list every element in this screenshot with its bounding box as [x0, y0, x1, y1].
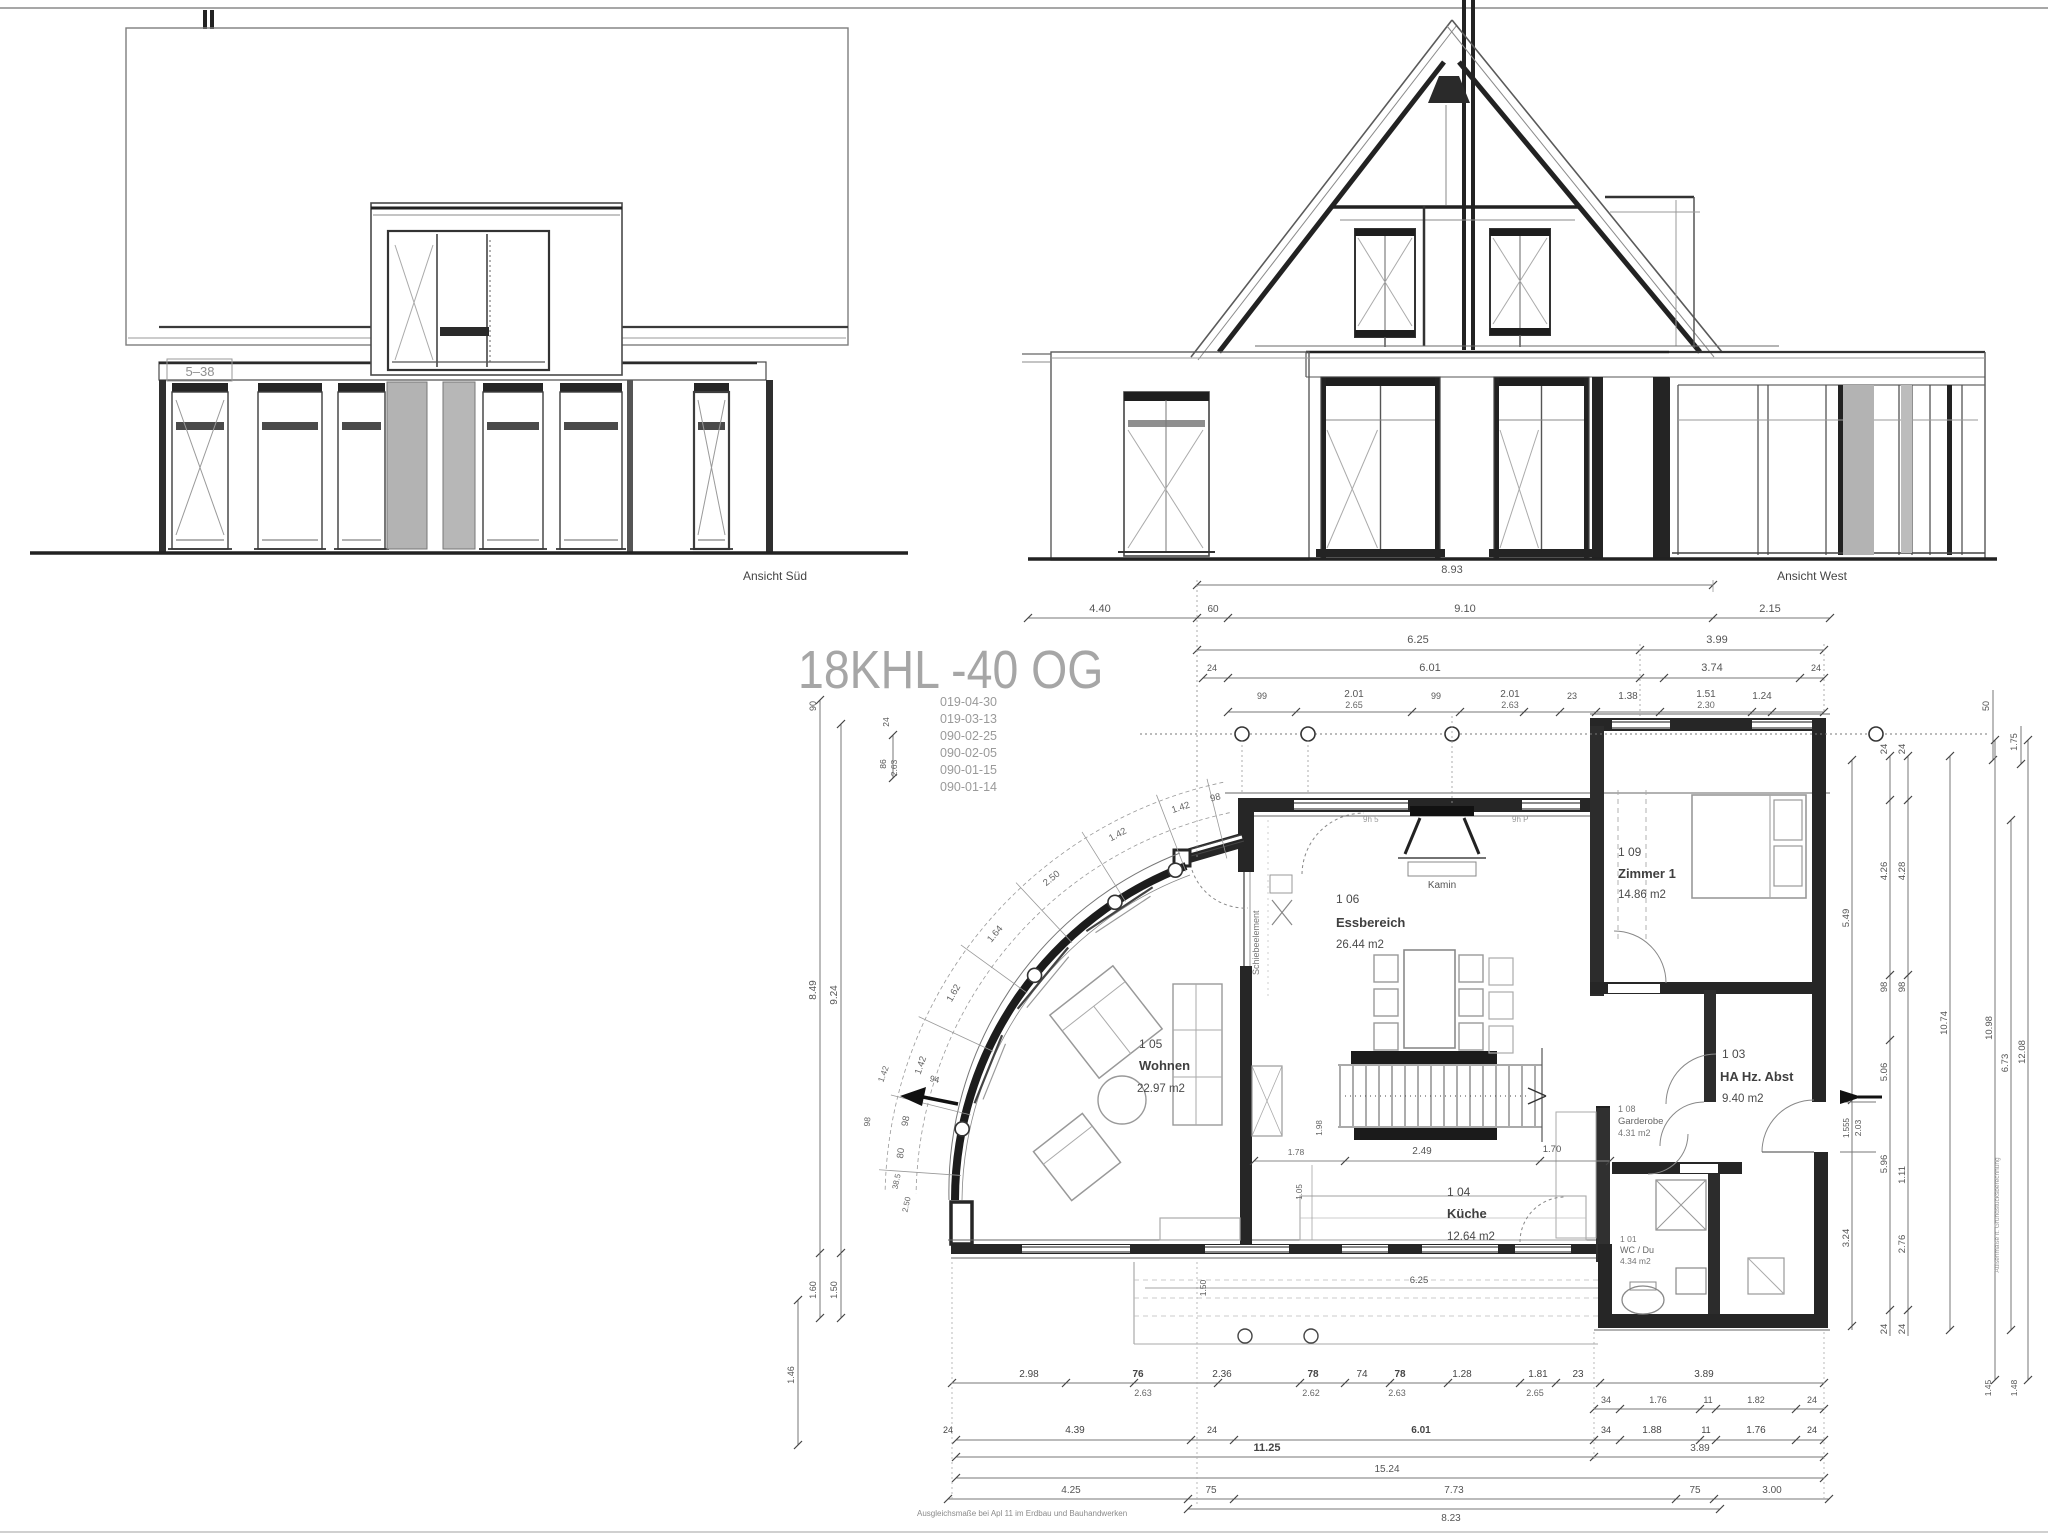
svg-text:Küche: Küche	[1447, 1206, 1487, 1221]
svg-text:090-01-14: 090-01-14	[940, 780, 997, 794]
svg-text:1.24: 1.24	[1752, 691, 1772, 702]
svg-text:019-03-13: 019-03-13	[940, 712, 997, 726]
svg-text:14.86 m2: 14.86 m2	[1618, 889, 1666, 901]
svg-text:1 01: 1 01	[1620, 1234, 1637, 1244]
svg-text:090-02-05: 090-02-05	[940, 746, 997, 760]
svg-text:15.24: 15.24	[1374, 1464, 1399, 1475]
svg-text:1 08: 1 08	[1618, 1104, 1636, 1114]
svg-text:90: 90	[808, 701, 818, 711]
svg-text:6.25: 6.25	[1410, 1275, 1429, 1286]
svg-text:3.89: 3.89	[1690, 1443, 1710, 1454]
svg-text:9h P: 9h P	[1512, 815, 1528, 824]
svg-text:090-01-15: 090-01-15	[940, 763, 997, 777]
svg-text:1 05: 1 05	[1139, 1037, 1163, 1051]
svg-text:1.38: 1.38	[1618, 691, 1638, 702]
svg-text:1 06: 1 06	[1336, 892, 1360, 906]
svg-text:Essbereich: Essbereich	[1336, 915, 1405, 930]
svg-text:1.50: 1.50	[1198, 1279, 1208, 1296]
svg-text:24: 24	[1879, 1324, 1890, 1335]
svg-text:1.81: 1.81	[1528, 1369, 1548, 1380]
svg-text:4.26: 4.26	[1879, 862, 1890, 881]
svg-text:24: 24	[1207, 663, 1217, 673]
svg-text:5.96: 5.96	[1879, 1155, 1890, 1174]
svg-text:1.05: 1.05	[1295, 1184, 1304, 1200]
svg-text:Außenmaße lt. Grundstücksberec: Außenmaße lt. Grundstücksberechnung	[1994, 1157, 2001, 1273]
svg-text:Wohnen: Wohnen	[1139, 1058, 1190, 1073]
svg-text:3.24: 3.24	[1841, 1229, 1852, 1248]
svg-text:99: 99	[1431, 691, 1441, 701]
svg-text:3.00: 3.00	[1762, 1485, 1782, 1496]
svg-text:75: 75	[1205, 1485, 1217, 1496]
svg-text:Zimmer 1: Zimmer 1	[1618, 866, 1676, 881]
svg-text:2.63: 2.63	[1388, 1388, 1406, 1398]
svg-text:24: 24	[1807, 1395, 1817, 1405]
svg-text:8.49: 8.49	[808, 980, 819, 1000]
svg-text:12.64 m2: 12.64 m2	[1447, 1231, 1495, 1243]
svg-text:5.06: 5.06	[1879, 1063, 1890, 1082]
svg-text:24: 24	[1807, 1425, 1817, 1435]
svg-text:6.25: 6.25	[1407, 634, 1428, 646]
svg-text:10.74: 10.74	[1939, 1011, 1950, 1035]
svg-text:4.39: 4.39	[1065, 1425, 1085, 1436]
svg-text:WC / Du: WC / Du	[1620, 1245, 1654, 1255]
svg-text:Kamin: Kamin	[1428, 880, 1456, 891]
svg-text:6.73: 6.73	[2000, 1054, 2011, 1073]
svg-text:24: 24	[1207, 1425, 1217, 1435]
svg-text:7.73: 7.73	[1444, 1485, 1464, 1496]
svg-text:2.63: 2.63	[889, 759, 899, 776]
svg-text:1.48: 1.48	[2009, 1379, 2019, 1396]
svg-text:8.93: 8.93	[1441, 564, 1462, 576]
svg-text:5–38: 5–38	[186, 364, 215, 379]
svg-text:2.01: 2.01	[1344, 689, 1364, 700]
svg-text:60: 60	[1207, 604, 1219, 615]
svg-text:1 03: 1 03	[1722, 1047, 1746, 1061]
svg-text:2.63: 2.63	[1501, 700, 1519, 710]
svg-text:1 04: 1 04	[1447, 1185, 1471, 1199]
svg-text:1.75: 1.75	[2009, 733, 2019, 751]
svg-text:78: 78	[1394, 1369, 1406, 1380]
svg-text:4.31 m2: 4.31 m2	[1618, 1128, 1651, 1138]
svg-text:1.45: 1.45	[1983, 1379, 1993, 1396]
svg-text:2.30: 2.30	[1697, 700, 1715, 710]
svg-text:99: 99	[1257, 691, 1267, 701]
svg-text:1.28: 1.28	[1452, 1369, 1472, 1380]
svg-text:2.03: 2.03	[1853, 1119, 1863, 1136]
svg-text:1.76: 1.76	[1746, 1425, 1766, 1436]
svg-text:11: 11	[1701, 1425, 1710, 1435]
svg-text:1.82: 1.82	[1747, 1395, 1765, 1405]
svg-text:9.40 m2: 9.40 m2	[1722, 1093, 1764, 1105]
svg-text:2.98: 2.98	[1019, 1369, 1039, 1380]
svg-text:26.44 m2: 26.44 m2	[1336, 939, 1384, 951]
svg-text:9.10: 9.10	[1454, 603, 1475, 615]
svg-text:1.50: 1.50	[829, 1281, 839, 1299]
svg-text:98: 98	[1897, 982, 1908, 993]
svg-text:HA Hz. Abst: HA Hz. Abst	[1720, 1069, 1794, 1084]
svg-text:22.97 m2: 22.97 m2	[1137, 1083, 1185, 1095]
svg-text:76: 76	[1132, 1369, 1144, 1380]
svg-text:34: 34	[1601, 1395, 1611, 1405]
svg-text:1.555: 1.555	[1842, 1117, 1851, 1138]
svg-text:3.74: 3.74	[1701, 662, 1722, 674]
svg-text:18KHL -40 OG: 18KHL -40 OG	[798, 639, 1103, 700]
svg-text:4.40: 4.40	[1089, 603, 1110, 615]
svg-text:2.36: 2.36	[1212, 1369, 1232, 1380]
svg-text:3.89: 3.89	[1694, 1369, 1714, 1380]
svg-text:80: 80	[895, 1147, 907, 1159]
svg-text:1.76: 1.76	[1649, 1395, 1667, 1405]
svg-text:9.24: 9.24	[829, 985, 840, 1005]
svg-text:24: 24	[1897, 1324, 1908, 1335]
svg-text:1.70: 1.70	[1543, 1144, 1562, 1155]
svg-text:98: 98	[1879, 982, 1890, 993]
svg-text:2.62: 2.62	[1302, 1388, 1320, 1398]
svg-text:24: 24	[1811, 663, 1821, 673]
svg-text:1.51: 1.51	[1696, 689, 1716, 700]
svg-text:24: 24	[881, 717, 891, 727]
svg-text:1 09: 1 09	[1618, 845, 1642, 859]
svg-text:4.25: 4.25	[1061, 1485, 1081, 1496]
svg-text:75: 75	[1689, 1485, 1701, 1496]
svg-text:1.60: 1.60	[808, 1281, 818, 1299]
svg-text:4.34 m2: 4.34 m2	[1620, 1256, 1651, 1266]
svg-text:Ausgleichsmaße bei Apl 11 im E: Ausgleichsmaße bei Apl 11 im Erdbau und …	[917, 1509, 1127, 1518]
svg-text:Schiebeelement: Schiebeelement	[1251, 910, 1261, 975]
svg-text:090-02-25: 090-02-25	[940, 729, 997, 743]
svg-text:1.88: 1.88	[1642, 1425, 1662, 1436]
svg-text:11.25: 11.25	[1254, 1442, 1281, 1454]
svg-text:24: 24	[943, 1425, 953, 1435]
svg-text:2.63: 2.63	[1134, 1388, 1152, 1398]
svg-text:6.01: 6.01	[1419, 662, 1440, 674]
svg-text:86: 86	[878, 759, 888, 769]
svg-text:34: 34	[1601, 1425, 1611, 1435]
svg-text:4.28: 4.28	[1897, 862, 1908, 881]
svg-text:78: 78	[1307, 1369, 1319, 1380]
svg-text:6.01: 6.01	[1411, 1425, 1431, 1436]
svg-text:98: 98	[862, 1116, 873, 1127]
svg-text:019-04-30: 019-04-30	[940, 695, 997, 709]
svg-text:Ansicht Süd: Ansicht Süd	[743, 569, 807, 583]
svg-text:50: 50	[1981, 701, 1991, 711]
svg-text:Ansicht West: Ansicht West	[1777, 569, 1847, 583]
svg-text:12.08: 12.08	[2017, 1040, 2028, 1064]
svg-text:1.78: 1.78	[1288, 1147, 1305, 1157]
svg-text:24: 24	[1879, 744, 1890, 755]
svg-text:2.65: 2.65	[1526, 1388, 1544, 1398]
svg-text:23: 23	[1572, 1369, 1584, 1380]
svg-text:3.99: 3.99	[1706, 634, 1727, 646]
svg-text:2.76: 2.76	[1897, 1235, 1908, 1254]
svg-text:1.46: 1.46	[786, 1366, 796, 1384]
svg-text:9h 5: 9h 5	[1363, 815, 1379, 824]
svg-text:1.11: 1.11	[1897, 1166, 1908, 1184]
svg-text:74: 74	[1356, 1369, 1368, 1380]
svg-text:24: 24	[1897, 744, 1908, 755]
svg-text:98: 98	[900, 1115, 913, 1127]
svg-text:2.15: 2.15	[1759, 603, 1780, 615]
svg-text:2.49: 2.49	[1412, 1146, 1432, 1157]
svg-text:23: 23	[1567, 691, 1577, 701]
svg-text:5.49: 5.49	[1841, 909, 1852, 928]
svg-text:10.98: 10.98	[1984, 1016, 1995, 1040]
svg-text:1.98: 1.98	[1315, 1120, 1324, 1136]
svg-text:11: 11	[1703, 1395, 1712, 1405]
svg-text:Garderobe: Garderobe	[1618, 1116, 1663, 1127]
svg-text:2.01: 2.01	[1500, 689, 1520, 700]
svg-text:8.23: 8.23	[1441, 1513, 1461, 1524]
svg-text:2.65: 2.65	[1345, 700, 1363, 710]
